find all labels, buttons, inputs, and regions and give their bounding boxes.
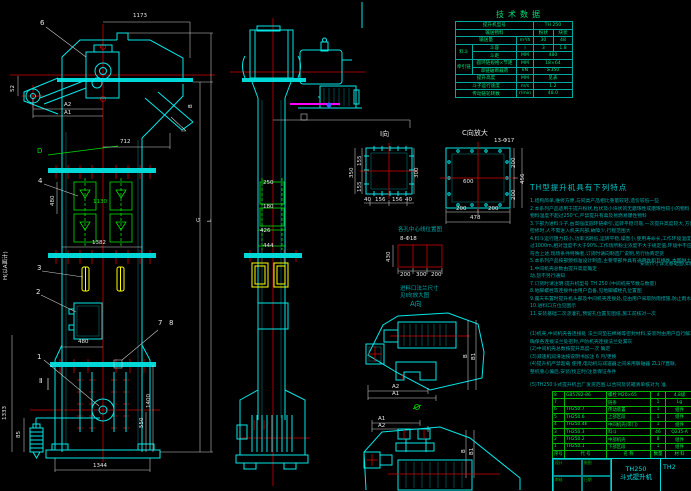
callout-8: 8 [169, 320, 173, 326]
bom-mat: 组件 [665, 414, 691, 421]
technical-data-table: 提升机型号 TH 250 输送物料 粉状 块状 输送量 m³/h 30 48 料… [455, 21, 573, 98]
bom-row: 1 TH250.1 下部区段 1 组件 配重 [553, 443, 691, 450]
dim-426: 426 [260, 228, 271, 234]
bom-qty: 1 [651, 443, 666, 450]
note-line: 3.下部为进料斗子,由高强度圆环链牵引,运转平稳可靠,一次提升高度较大,方便布置… [530, 221, 691, 229]
bom-row: 2 TH250.2 中部机壳 8 组件 [553, 436, 691, 443]
buckets-side [252, 263, 288, 287]
dim-85: 85 [16, 431, 22, 438]
dim-156b: 156 [392, 197, 403, 203]
bom-name: 上部区段 [606, 414, 650, 421]
dim-1382: 1382 [92, 240, 106, 246]
callout-1: 1 [37, 354, 41, 360]
cell-unit: MM [517, 59, 534, 67]
bom-qty: 1 [651, 406, 666, 413]
bom-mat: Q235-A [665, 428, 691, 435]
flange-note-line2: 见Ⅰ向放大图 [400, 293, 429, 299]
cell-unit: kN [517, 67, 534, 75]
cell-label: 提升高度 [456, 75, 517, 83]
cell-value: 48.0 [533, 90, 572, 98]
drive-arrangement-2 [364, 420, 520, 490]
cell-unit: m/s [517, 82, 534, 90]
note-line: 4.料斗运行阻力较小,功率消耗低,运转平稳,噪音小,使用寿命长,工作环境温度为-… [530, 236, 691, 244]
title-block: 设计 制图 审核 日期 TH250 斗式提升机 TH2 [552, 458, 691, 491]
dim-d2-a2: A2 [378, 423, 385, 429]
note-line: 确保各连接法兰处密封,严防机壳连接法兰处漏灰 [530, 339, 691, 347]
table-row: 料斗 斗容 l 3 1.8 [456, 44, 573, 52]
dim-480-boot: 480 [78, 339, 89, 345]
title-block-cell: 审核 [553, 476, 582, 491]
bom-num: 1 [553, 443, 565, 450]
bom-qty: 1 [651, 421, 666, 428]
bom-name: 中部机壳 [606, 436, 650, 443]
note-line: 检修时,人不需进入机壳内部,故障少,行程范围大 [530, 228, 691, 236]
dim-155b: 155 [357, 182, 363, 193]
dim-480-mid: 480 [50, 196, 56, 207]
bom-row: 6 TH250.7 传动装置 1 组件 [553, 406, 691, 413]
dim-c600: 600 [463, 179, 474, 185]
note-line: 动,恕不另行通知 [530, 273, 691, 281]
bom-code [564, 399, 606, 406]
dim-h-total: H(以A面计) [3, 251, 9, 280]
side-note: 安装尺寸详见基础图(如图示) [640, 262, 691, 268]
cell-unit: l [517, 44, 534, 52]
cell-label: 斗距 [472, 52, 516, 60]
note-line: 物料温度不超过250℃,严禁提升有毒及易燃易爆性物料 [530, 213, 691, 221]
dim-anchor-200b: 200 [431, 272, 442, 278]
note-line: 2.本系列产品适用于提升粉状,粒状及小块状的无磨琢性或磨琢性较小的物料 如煤,水… [530, 206, 691, 214]
note-line: 9.露天布置时提升机头部及中间机壳连接处,应由用户采取防雨措施,防止雨水进入机壳… [530, 296, 691, 304]
anchor-layout-title: 各孔中心线位置图 [398, 227, 442, 233]
view-i-title: Ⅰ向 [380, 131, 389, 137]
dim-1173: 1173 [133, 13, 147, 19]
note-line: 1.结构简单,维修方便,与同类产品相比重量较轻,造价较低一些 [530, 198, 691, 206]
note-line: 10.进料口方位见图示 [530, 303, 691, 311]
cell-group: 料斗 [456, 44, 473, 59]
note-line: 整机重心偏后,安装/找正时/注意保证条件 [530, 369, 691, 377]
dim-d1-a2: A2 [392, 384, 399, 390]
detail-view-c [440, 142, 522, 224]
title-block-signature-grid: 设计 制图 审核 日期 [553, 459, 612, 491]
bom-name: 链条 [606, 399, 650, 406]
bolt-note-c: 13-Φ17 [494, 138, 514, 144]
dim-d2-a1: A1 [378, 416, 385, 422]
bom-mat: 组件 [665, 436, 691, 443]
cell-label: 传动链轮转数 [456, 90, 517, 98]
note-line: (3)减速机润滑油按说明书加注 6 月/更换 [530, 354, 691, 362]
bom-name: 下部区段 [606, 443, 650, 450]
cell-unit: MM [517, 75, 534, 83]
view-a-title: A向 [410, 301, 422, 307]
bom-code: GB5782-86 [564, 392, 606, 399]
bom-mat: Lg [665, 399, 691, 406]
cell-label: 输送量 [456, 37, 517, 45]
table-row: 斗子运行速度 m/s 1.2 [456, 82, 573, 90]
bom-row: 5 TH250.6 上部区段 1 组件 配对 [553, 414, 691, 421]
bom-mat: 组件 [665, 406, 691, 413]
bom-num: 3 [553, 428, 565, 435]
dim-d1-a1: A1 [392, 391, 399, 397]
flange-note-line1: 进料口法兰尺寸 [400, 286, 439, 292]
callout-6: 6 [40, 20, 44, 26]
dim-c200a: 200 [511, 158, 517, 169]
note-line: 符合上述,现场条件特殊者,订货时请向制造厂说明,另行协商定货 [530, 251, 691, 259]
bom-code: TH250.7 [564, 406, 606, 413]
bom-num: 7 [553, 399, 565, 406]
callout-7: 7 [158, 320, 162, 326]
bom-code: TH250.4Ⅱ [564, 421, 606, 428]
side-elevation-view [230, 2, 410, 486]
table-row: 提升机型号 TH 250 [456, 22, 573, 30]
dim-180: 180 [263, 204, 274, 210]
bom-mat: 组件 [665, 443, 691, 450]
note-line: 8.地脚螺栓等连接件由用户自备,见地脚螺栓孔位置图 [530, 288, 691, 296]
dim-d1-b: B [463, 354, 469, 358]
note-line: 过1000m,相对湿度不大于90%,工作场所粉尘浓度不大于规定值,环境中不应含易… [530, 243, 691, 251]
cell-unit: m³/h [517, 37, 534, 45]
drawing-number: TH2 [661, 459, 691, 491]
bom-qty: 46 [651, 428, 666, 435]
cell-value: 3 [533, 44, 553, 52]
drawing-name: 斗式提升机 [612, 473, 660, 481]
cell-unit: MM [517, 52, 534, 60]
dim-c200c: 200 [456, 206, 467, 212]
dim-d1-b1: B1 [471, 353, 477, 360]
note-line: 7.订货时请注明:提升机型号 TH 250 (中间机壳节数与数量) [530, 281, 691, 289]
bom-row: 8 GB5782-86 螺栓 M20×65 4 4.8级 附件 [553, 392, 691, 399]
cell-label: 单链破断载荷 [472, 67, 516, 75]
bolt-note-anchor: 8-Φ18 [400, 236, 417, 242]
dim-c200d: 200 [488, 206, 499, 212]
table-row: 传动链轮转数 r/min 48.0 [456, 90, 573, 98]
bom-num: 4 [553, 421, 565, 428]
dim-letter-g: G [196, 218, 202, 222]
note-line: (5)TH250斗式提升机出厂发货范围,以合同及装箱清单核对为 准. [530, 382, 691, 390]
cell-label: 斗子运行速度 [456, 82, 517, 90]
dim-300: 300 [414, 168, 420, 179]
bom-header: 材 料 [665, 451, 691, 458]
bom-name: 螺栓 M20×65 [606, 392, 650, 399]
cell-unit: r/min [517, 90, 534, 98]
table-row: 输送物料 粉状 块状 [456, 29, 573, 37]
bom-num: 5 [553, 414, 565, 421]
bom-header: 数量 [651, 451, 666, 458]
bom-qty: 4 [651, 392, 666, 399]
notes-title: TH型提升机具有下列特点 [530, 182, 691, 193]
bom-header: 名 称 [606, 451, 650, 458]
dim-c456: 456 [520, 174, 526, 185]
bom-qty: 1 [651, 414, 666, 421]
dim-1344: 1344 [93, 463, 107, 469]
parts-list-table: 8 GB5782-86 螺栓 M20×65 4 4.8级 附件 7 链条 1 L… [552, 391, 691, 459]
callout-3: 3 [37, 265, 41, 271]
cell-value: ≥350 [533, 67, 572, 75]
cell-label: 斗容 [472, 44, 516, 52]
cad-drawing-sheet: 1173 6 52 A2 A1 712 B D 4 480 1130 1382 … [0, 0, 691, 491]
dim-letter-l: L [207, 219, 213, 222]
bom-qty: 1 [651, 399, 666, 406]
cell-value: 18×64 [533, 59, 572, 67]
dim-444: 444 [263, 243, 274, 249]
dim-350: 350 [349, 168, 355, 179]
dim-letter-b: B [188, 104, 194, 108]
drive-arrangement-1 [366, 313, 484, 410]
title-block-cell: 设计 [553, 459, 582, 476]
dim-a2-head: A2 [64, 102, 71, 108]
dim-1333: 1333 [2, 406, 8, 420]
section-letter-d: D [37, 148, 42, 154]
bom-header: 代 号 [564, 451, 606, 458]
bom-row: 7 链条 1 Lg 0.06 [553, 399, 691, 406]
bom-code: TH250.1 [564, 443, 606, 450]
cell-group: 牵引链 [456, 59, 473, 74]
dim-d2-b: B [461, 449, 467, 453]
title-block-cell: 日期 [582, 476, 611, 491]
cell-label: 提升机型号 [456, 22, 534, 30]
cell-value: TH 250 [533, 22, 572, 30]
tech-table-title: 技术数据 [470, 9, 570, 20]
note-line: (2)中间机壳总数按提升高度一次 确定 [530, 346, 691, 354]
chain-guides [48, 146, 132, 246]
anchor-bolt-layout [393, 245, 442, 274]
cell-label: 输送物料 [456, 29, 534, 37]
drawing-title: TH250 斗式提升机 [612, 459, 661, 491]
note-line: (4)提升机严禁超载 使用,电动机与减速器之间采用联轴器 ZL1/Y直联, [530, 361, 691, 369]
dim-1130: 1130 [93, 199, 107, 205]
dim-155a: 155 [357, 156, 363, 167]
bom-name: 料斗 [606, 428, 650, 435]
dim-550: 550 [139, 418, 145, 429]
dim-1400: 1400 [146, 394, 152, 408]
bom-name: 传动装置 [606, 406, 650, 413]
table-row: 单链破断载荷 kN ≥350 [456, 67, 573, 75]
dim-a1-head: A1 [64, 110, 71, 116]
bom-header: 序号 [553, 451, 565, 458]
table-row: 斗距 MM 480 [456, 52, 573, 60]
bom-num: 2 [553, 436, 565, 443]
dim-156a: 156 [375, 197, 386, 203]
view-c-title: C向放大 [462, 130, 488, 136]
bom-qty: 8 [651, 436, 666, 443]
cell-value: 48 [553, 37, 572, 45]
callout-2: 2 [36, 289, 40, 295]
cell-value: 1.8 [553, 44, 572, 52]
dim-430: 430 [386, 252, 392, 263]
section-ii-marker: Ⅱ [39, 378, 42, 384]
cell-value: 粉状 [533, 29, 553, 37]
bom-mat: 组件 [665, 421, 691, 428]
table-row: 提升高度 MM 见表 [456, 75, 573, 83]
dim-40b: 40 [405, 197, 412, 203]
dim-250: 250 [263, 180, 274, 186]
drawing-model: TH250 [612, 465, 660, 473]
cell-value: 480 [533, 52, 572, 60]
dim-712: 712 [120, 139, 131, 145]
table-row: 牵引链 圆环链规格×节距 MM 18×64 [456, 59, 573, 67]
bom-num: 6 [553, 406, 565, 413]
cell-value: 见表 [533, 75, 572, 83]
bom-code: TH250.2 [564, 436, 606, 443]
dim-anchor-300: 300 [416, 272, 427, 278]
dim-c478: 478 [470, 215, 481, 221]
dim-d2-b1: B1 [469, 448, 475, 455]
bom-code: TH250.6 [564, 414, 606, 421]
bom-name: 中间机壳(带门) [606, 421, 650, 428]
note-line: 11.安装基础二次浇灌孔,预留孔位置见图纸,施工前核对一次 [530, 311, 691, 319]
cell-value: 1.2 [533, 82, 572, 90]
note-line: (1)机壳,中间机壳各连接处 法兰间垫石棉绳等密封材料,安装时由用户自行解决, [530, 331, 691, 339]
bom-code: TH250.3 [564, 428, 606, 435]
dim-c200b: 200 [511, 190, 517, 201]
table-row: 输送量 m³/h 30 48 [456, 37, 573, 45]
dim-52: 52 [10, 85, 16, 92]
dim-40a: 40 [364, 197, 371, 203]
dim-anchor-200a: 200 [400, 272, 411, 278]
chain-guides-side [258, 178, 286, 250]
title-block-cell: 制图 [582, 459, 611, 476]
bom-num: 8 [553, 392, 565, 399]
cell-value: 块状 [553, 29, 572, 37]
feature-notes: TH型提升机具有下列特点 1.结构简单,维修方便,与同类产品相比重量较轻,造价较… [530, 182, 691, 390]
bom-row: 4 TH250.4Ⅱ 中间机壳(带门) 1 组件 [553, 421, 691, 428]
cell-label: 圆环链规格×节距 [472, 59, 516, 67]
cell-value: 30 [533, 37, 553, 45]
bom-header-row: 序号 代 号 名 称 数量 材 料 备注 [553, 451, 691, 458]
bom-row: 3 TH250.3 料斗 46 Q235-A 204 [553, 428, 691, 435]
bom-mat: 4.8级 [665, 392, 691, 399]
callout-4: 4 [38, 178, 42, 184]
front-elevation-view [10, 22, 215, 472]
